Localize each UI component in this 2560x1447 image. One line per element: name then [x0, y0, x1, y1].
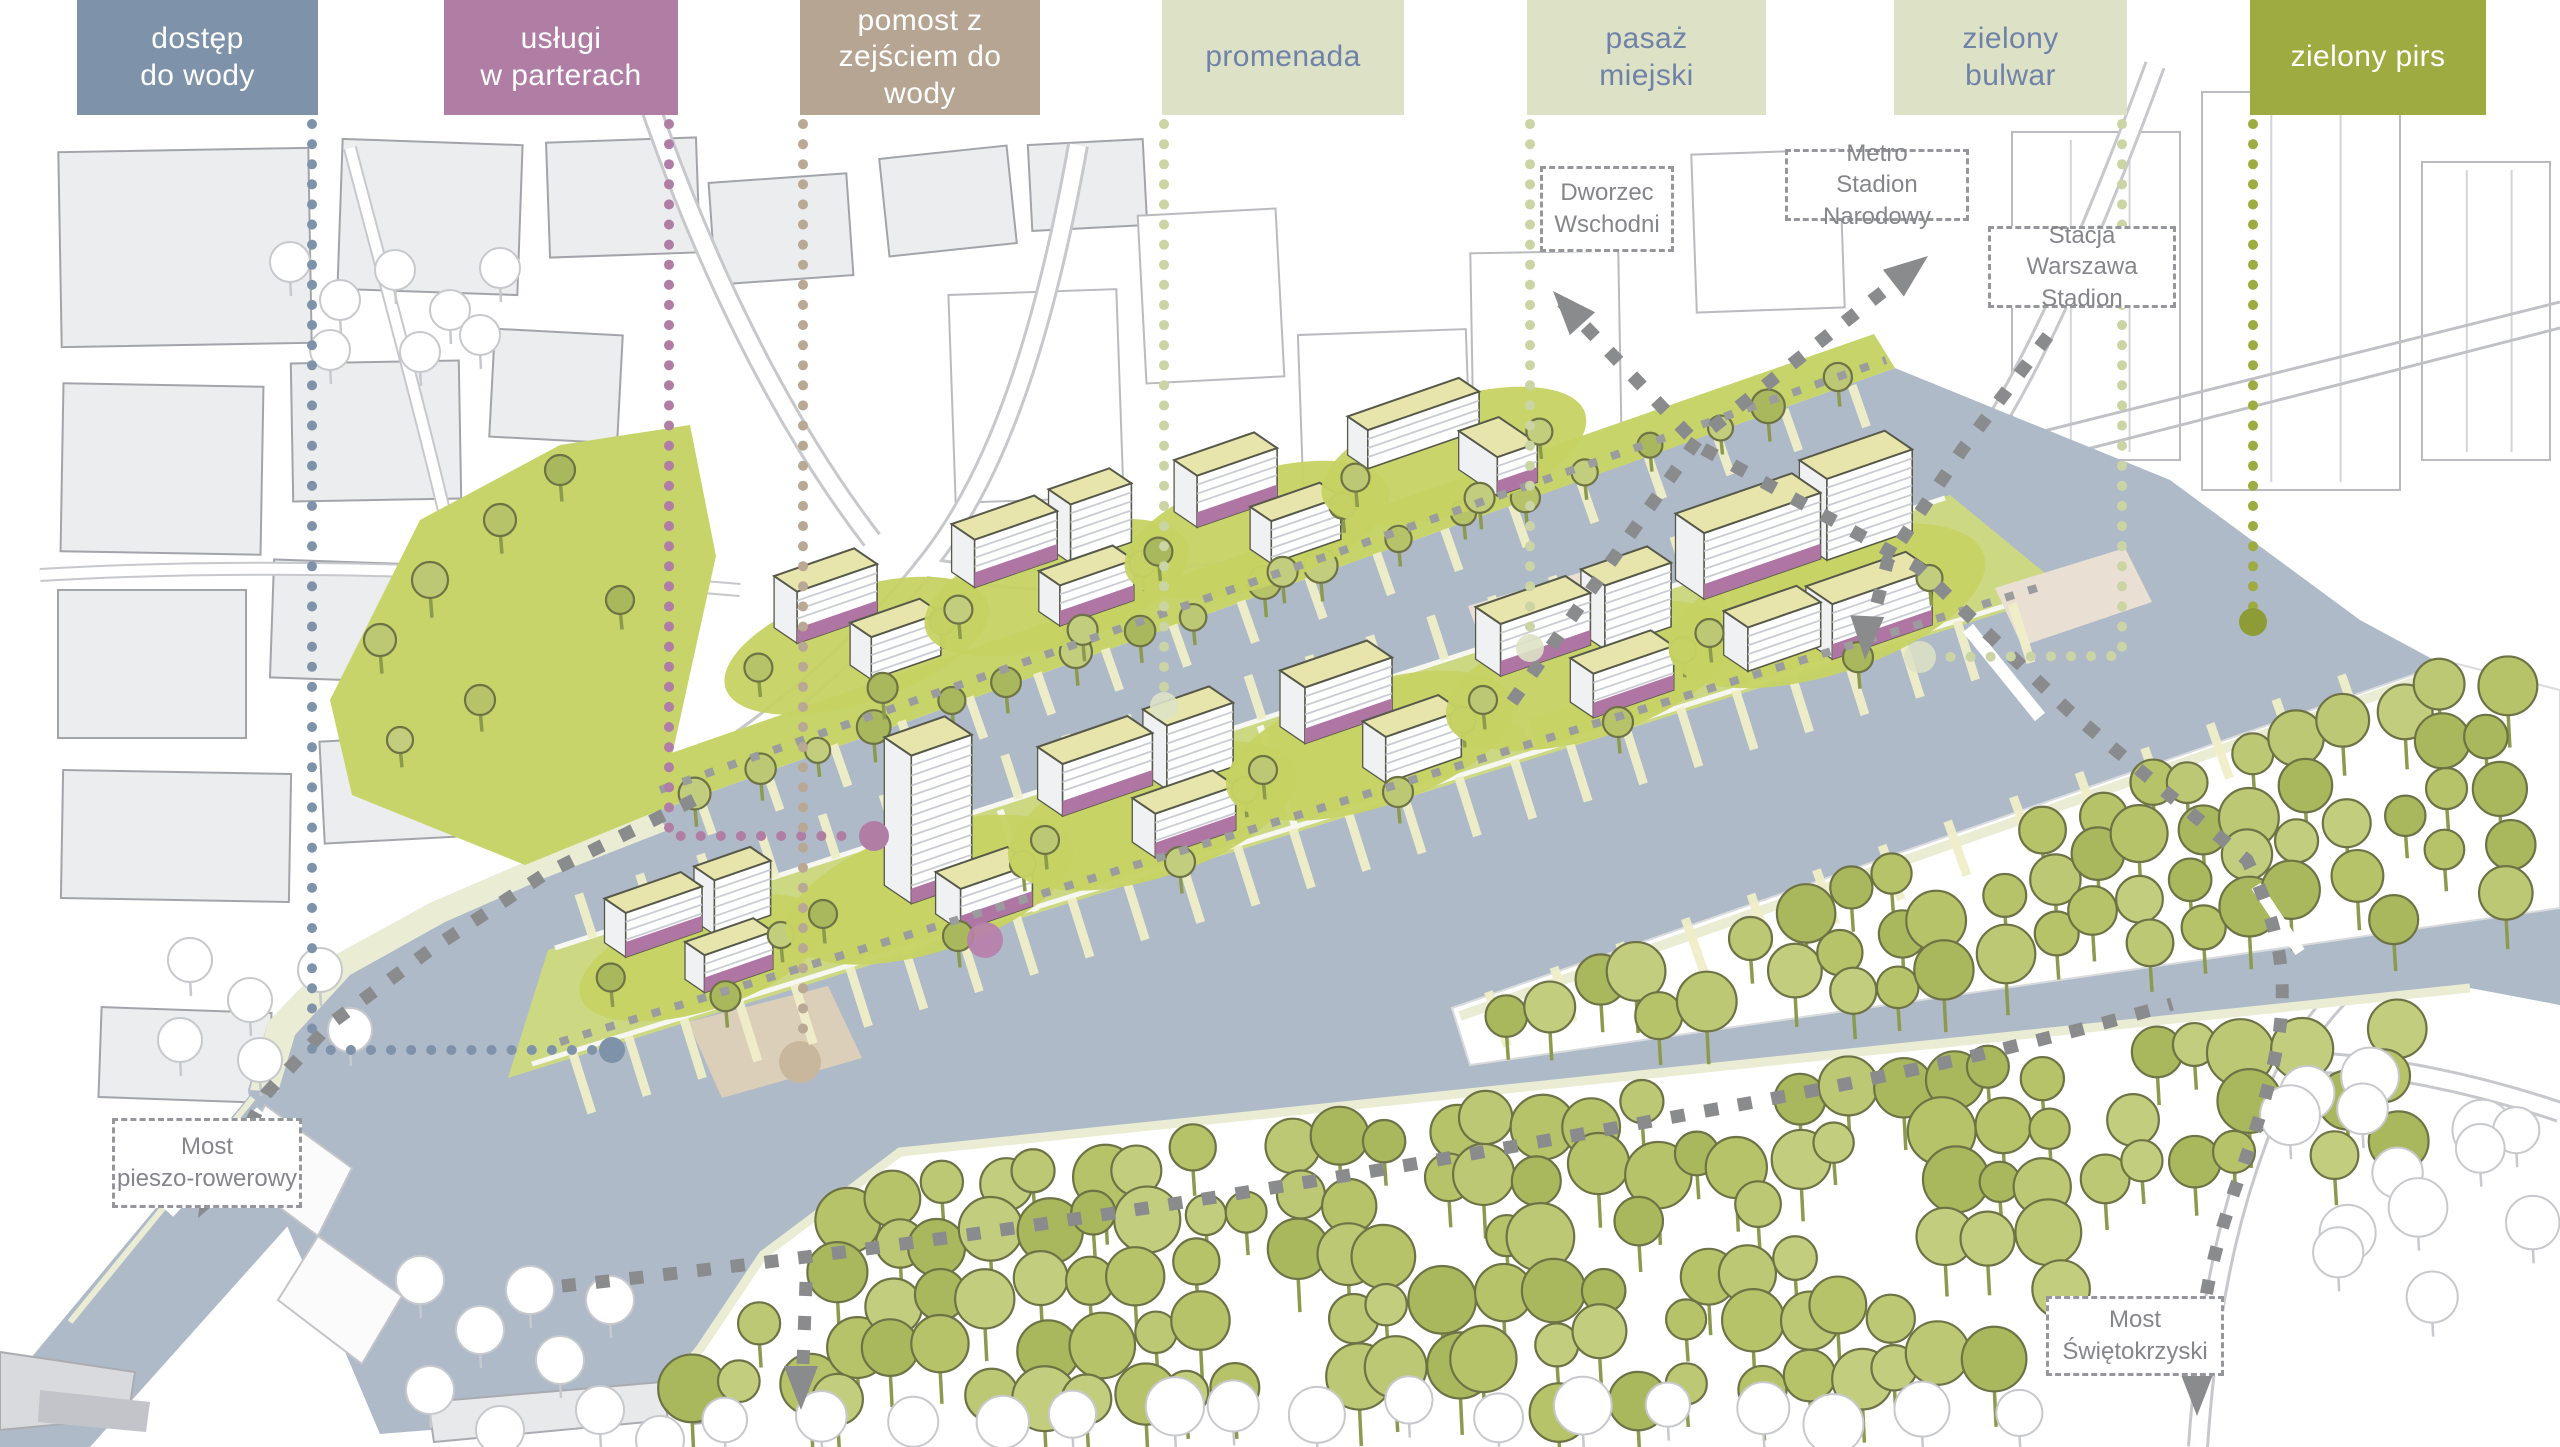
legend-item-pomost: pomost z zejściem do wody — [800, 0, 1040, 115]
map-label-most-pieszo-rowerowy: Most pieszo-rowerowy — [112, 1118, 302, 1208]
legend-item-label: zielony bulwar — [1962, 21, 2058, 94]
map-label-stacja-warszawa-stadion: Stacja Warszawa Stadion — [1988, 226, 2176, 308]
legend-item-dostep-do-wody: dostęp do wody — [77, 0, 318, 115]
map-label-metro-stadion-narodowy: Metro Stadion Narodowy — [1785, 149, 1969, 221]
legend-item-pasaz-miejski: pasaż miejski — [1527, 0, 1766, 115]
map-label-text: Metro Stadion Narodowy — [1788, 138, 1966, 233]
map-label-text: Most Świętokrzyski — [2062, 1304, 2207, 1367]
map-label-most-swietokrzyski: Most Świętokrzyski — [2046, 1296, 2224, 1376]
legend-item-uslugi-w-parterach: usługi w parterach — [444, 0, 678, 115]
legend-item-label: pasaż miejski — [1599, 21, 1693, 94]
legend-item-label: pomost z zejściem do wody — [839, 3, 1002, 113]
map-label-text: Dworzec Wschodni — [1554, 177, 1659, 240]
map-label-text: Stacja Warszawa Stadion — [1991, 220, 2173, 315]
map-label-text: Most pieszo-rowerowy — [117, 1131, 297, 1194]
legend-item-zielony-pirs: zielony pirs — [2250, 0, 2486, 115]
legend-item-promenada: promenada — [1162, 0, 1404, 115]
masterplan-diagram: dostęp do wody usługi w parterach pomost… — [0, 0, 2560, 1447]
legend-item-label: usługi w parterach — [480, 21, 641, 94]
legend-item-label: promenada — [1205, 39, 1360, 76]
map-canvas — [0, 0, 2560, 1447]
map-label-dworzec-wschodni: Dworzec Wschodni — [1540, 166, 1674, 252]
legend-item-label: dostęp do wody — [140, 21, 255, 94]
legend-item-label: zielony pirs — [2291, 39, 2446, 76]
legend-item-zielony-bulwar: zielony bulwar — [1894, 0, 2127, 115]
